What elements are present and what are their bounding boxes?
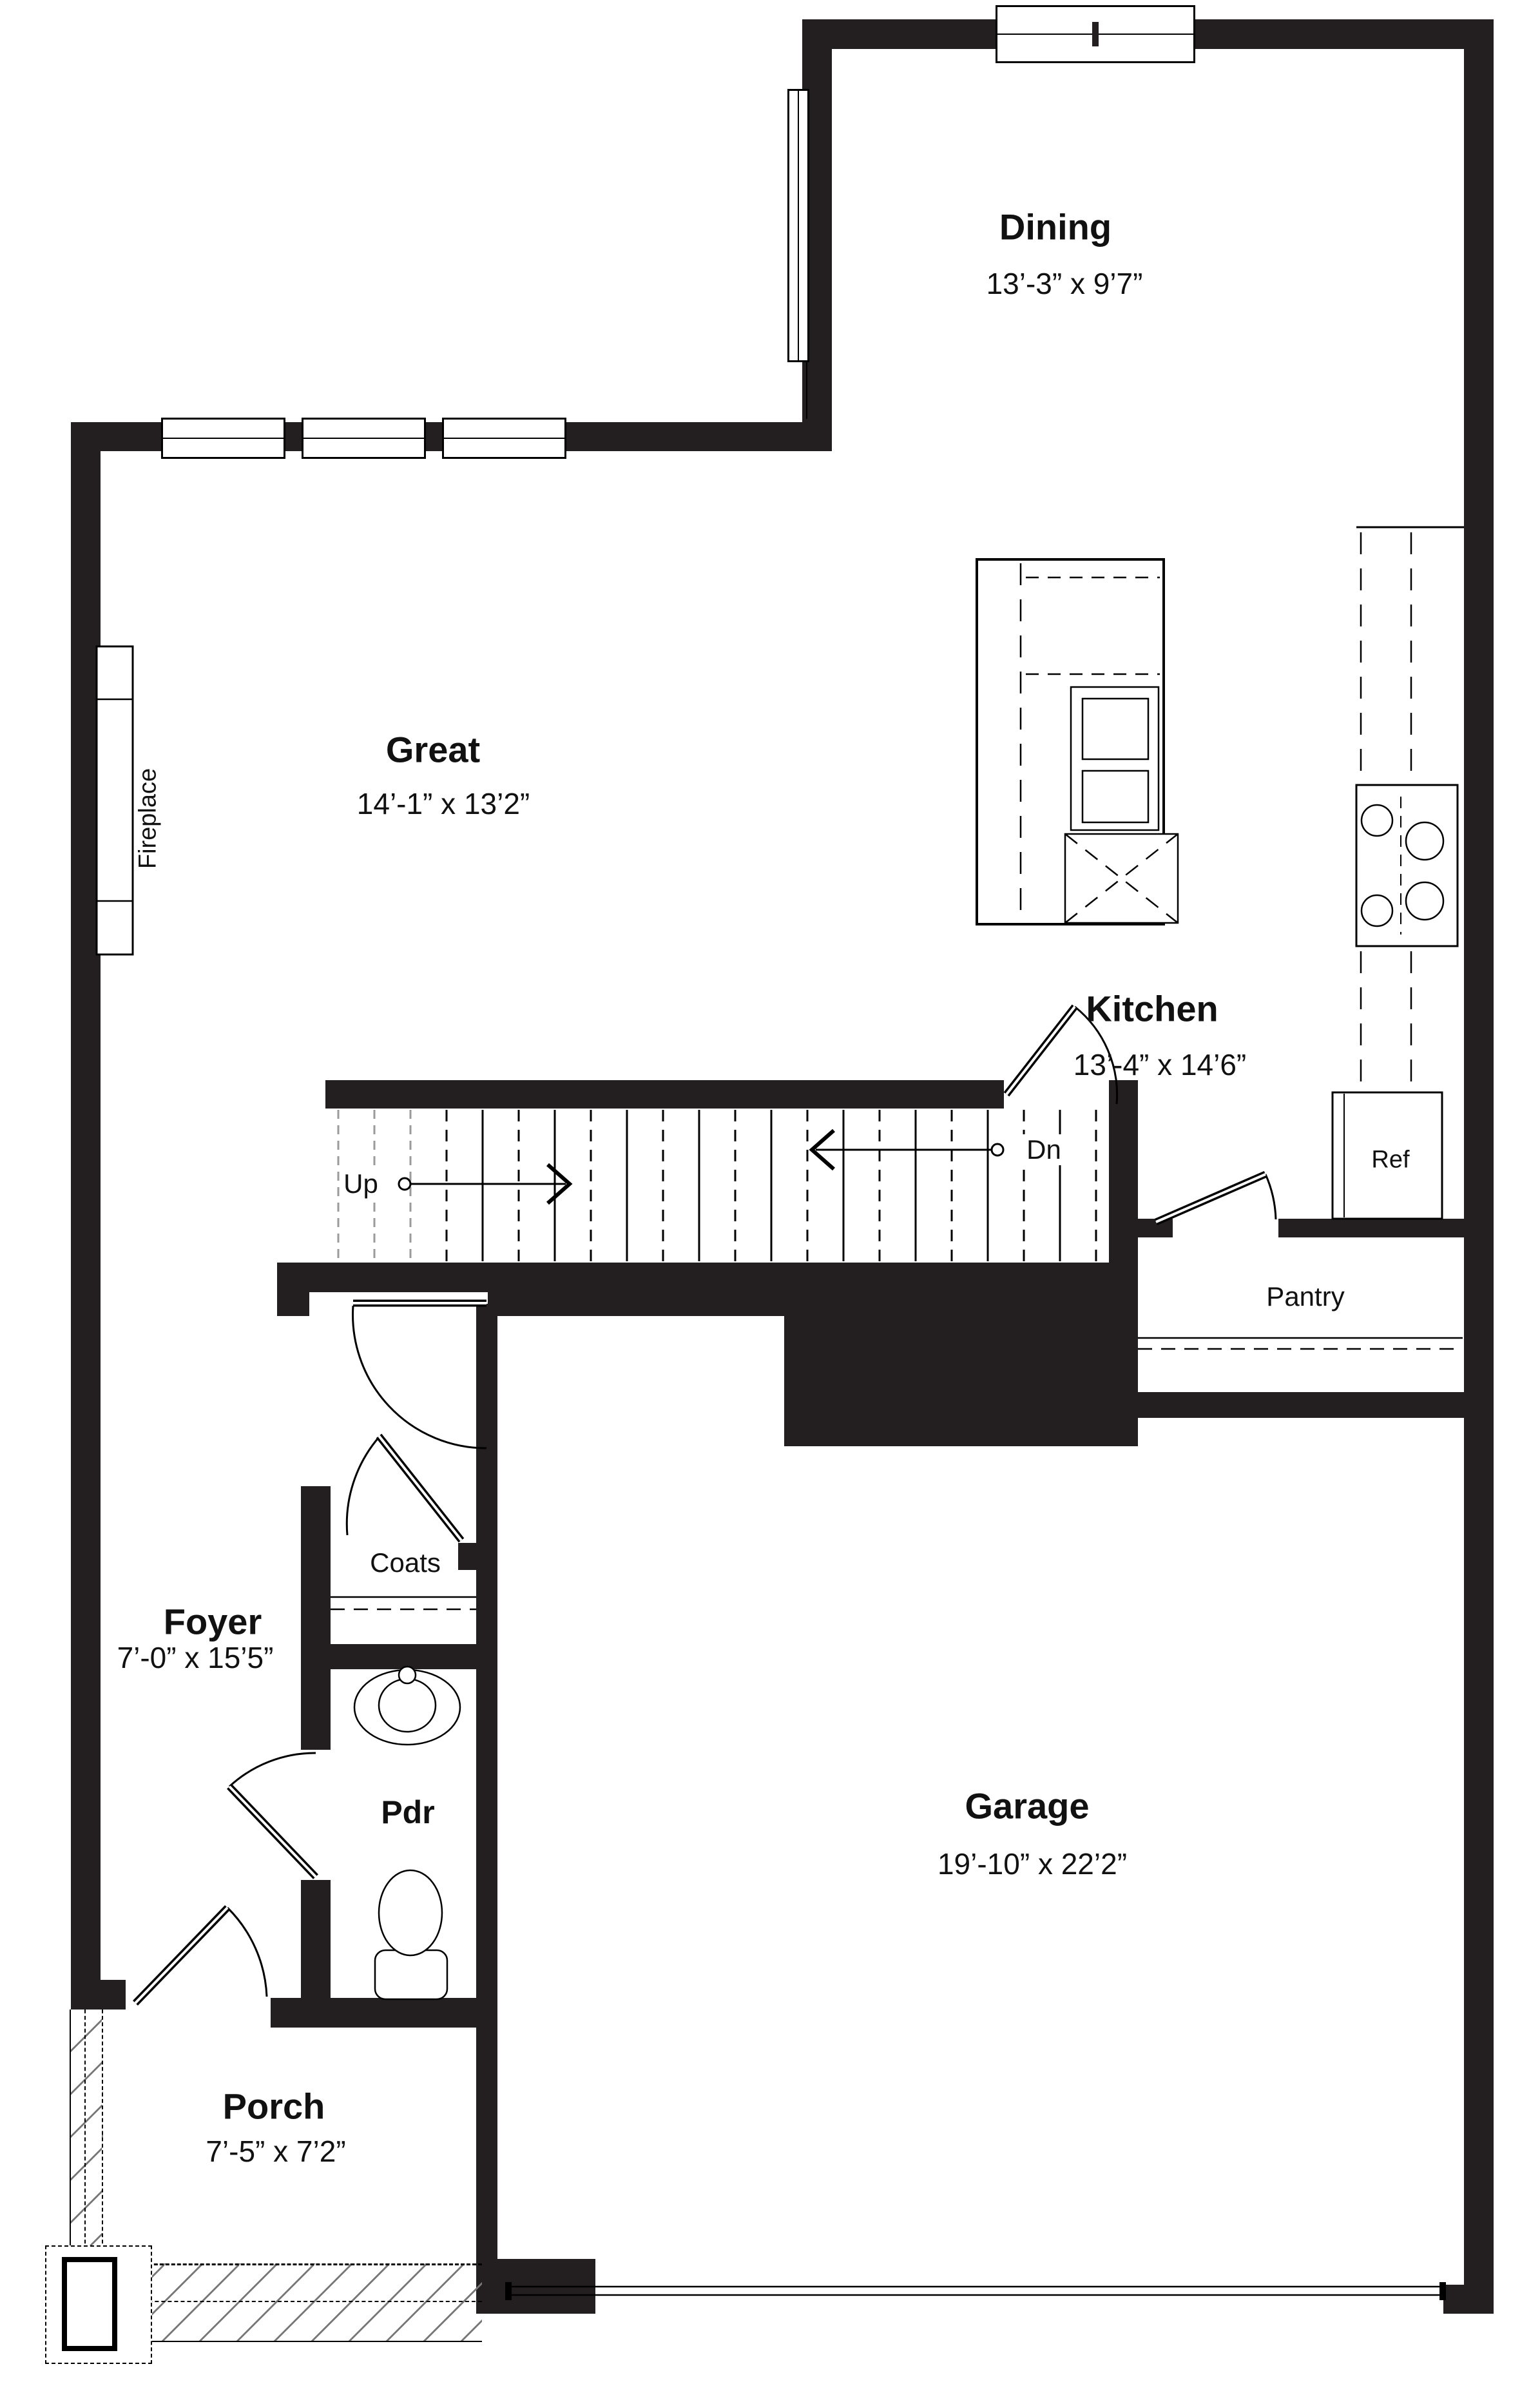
foyer-dims: 7’-0” x 15’5” — [117, 1640, 274, 1675]
plan-linework — [0, 0, 1540, 2402]
coats-shelf — [331, 1597, 476, 1609]
floor-plan: Dining 13’-3” x 9’7” Great 14’-1” x 13’2… — [0, 0, 1540, 2402]
down-label: Dn — [1023, 1134, 1065, 1165]
stove-cooktop — [1356, 785, 1458, 946]
pantry-label: Pantry — [1266, 1281, 1344, 1312]
garage-dims: 19’-10” x 22’2” — [938, 1846, 1127, 1881]
dining-label: Dining — [999, 206, 1112, 248]
porch-label: Porch — [223, 2086, 325, 2127]
kitchen-island — [977, 559, 1178, 924]
door-foyer-hall — [353, 1303, 486, 1448]
great-label: Great — [386, 729, 480, 771]
powder-label: Pdr — [381, 1794, 434, 1831]
up-label: Up — [340, 1168, 382, 1199]
down-arrow — [812, 1130, 1003, 1169]
fireplace-label: Fireplace — [135, 768, 162, 869]
powder-sink — [354, 1667, 460, 1745]
dining-dims: 13’-3” x 9’7” — [987, 266, 1143, 301]
porch-dims: 7’-5” x 7’2” — [206, 2134, 345, 2169]
staircase — [338, 1110, 1096, 1261]
garage-label: Garage — [965, 1785, 1090, 1827]
garage-door — [505, 2282, 1446, 2300]
pantry-shelf — [1138, 1338, 1463, 1349]
fireplace-box — [97, 646, 133, 954]
door-powder — [229, 1753, 316, 1877]
coats-label: Coats — [370, 1547, 441, 1578]
door-front — [135, 1908, 267, 2003]
island-sink — [1071, 687, 1159, 830]
refrigerator-label: Ref — [1371, 1147, 1409, 1174]
toilet — [375, 1870, 447, 1999]
great-dims: 14’-1” x 13’2” — [357, 786, 530, 821]
foyer-label: Foyer — [164, 1601, 262, 1643]
kitchen-label: Kitchen — [1086, 988, 1218, 1030]
island-dishwasher — [1065, 834, 1178, 923]
kitchen-dims: 13’-4” x 14’6” — [1073, 1047, 1246, 1082]
door-coats — [347, 1436, 461, 1540]
door-pantry — [1156, 1174, 1276, 1222]
up-arrow — [399, 1165, 570, 1203]
